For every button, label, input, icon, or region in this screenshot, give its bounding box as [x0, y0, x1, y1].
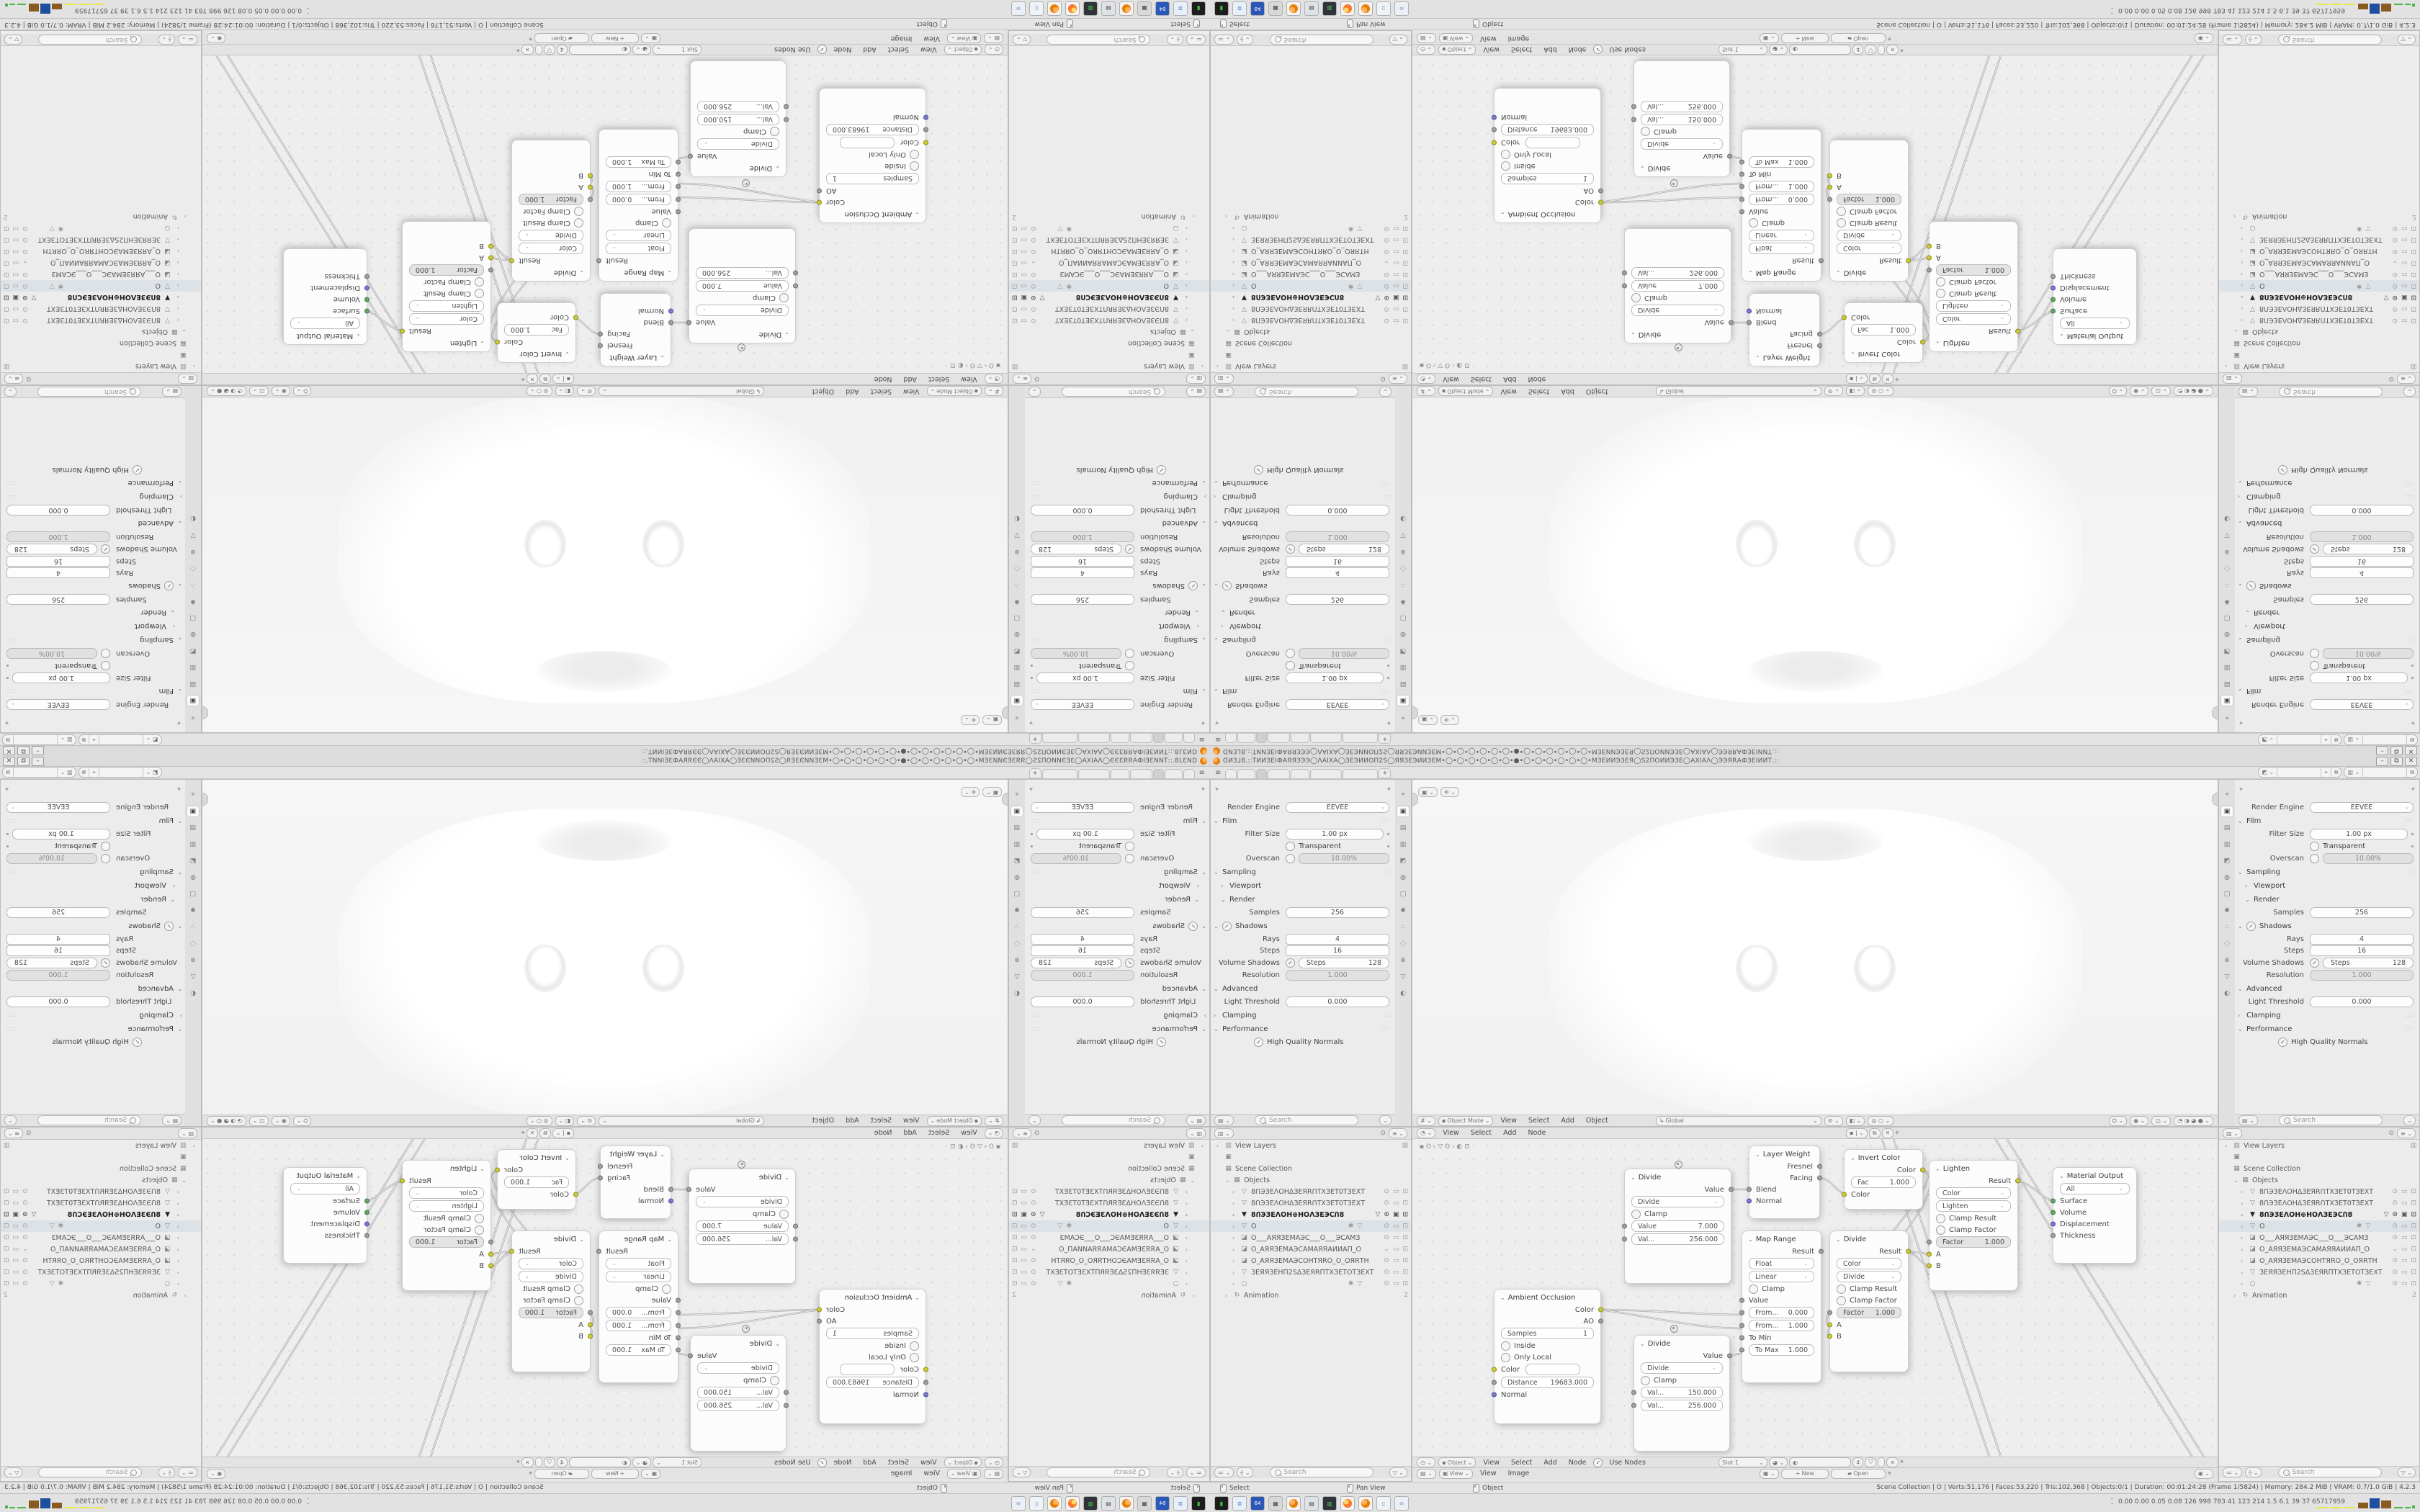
outliner-row-object[interactable]: ›▽ 8ՈЭЗЕΛОНΔЗЕЯRՈТХЗЕТ0ТЗЕХТ ⊙▭⊡	[1, 315, 201, 326]
tab-scene-icon[interactable]: ◩	[187, 646, 199, 656]
scene-browse-icon[interactable]: ◩ ⌄	[143, 768, 161, 777]
blend-mode-select[interactable]: Divide⌄	[519, 230, 583, 241]
rays-field[interactable]: 4	[2310, 934, 2414, 945]
properties-editor-icon[interactable]: ⌖	[1201, 719, 1205, 726]
outliner-row-view-layers[interactable]: ›▥ View Layers ▥	[1, 361, 201, 372]
menu-node[interactable]: Node	[1524, 375, 1551, 383]
transparent-checkbox[interactable]	[1125, 662, 1134, 671]
socket-to-max-in[interactable]: To Max1.000	[599, 1344, 678, 1356]
overlays-dropdown[interactable]: ◉ ⌄	[272, 1116, 290, 1126]
node-canvas[interactable]: ▪ O › ▽ O › ◐ ⊡ ⌄Divide Value Divide⌄ Cl…	[202, 1139, 1008, 1457]
samples-field[interactable]: 256	[1031, 595, 1134, 606]
node-invert-color[interactable]: ⌄Invert Color Color Fac1.000 Color	[498, 1150, 575, 1209]
properties-editor-icon[interactable]: ⌖	[177, 719, 181, 726]
outliner-row-object[interactable]: ›▽ 8ՈЭЗЕΛОНΔЗЕЯRՈТХЗЕТ0ТЗЕХТ ⊙▭⊡	[2219, 1186, 2419, 1197]
section-advanced[interactable]: ⌄Advanced	[6, 518, 182, 528]
calculator-app-icon[interactable]: ▦	[1137, 1, 1152, 16]
section-viewport[interactable]: ›Viewport	[1031, 881, 1199, 891]
anim-dot[interactable]	[2411, 833, 2414, 835]
image-options-button[interactable]: ◉ ⌄	[207, 1469, 225, 1479]
outliner-display-mode[interactable]: ▥ ⌄	[178, 374, 197, 384]
section-sampling[interactable]: ⌄Sampling∷∷	[2238, 867, 2414, 878]
outliner-row-camera[interactable]: ›◪ O___АЯЯЗЕМАЭС___О___ЭСАМЗ ⊙▭⊡	[1009, 1232, 1209, 1243]
menu-node[interactable]: Node	[870, 375, 897, 383]
view-layer-browse-icon[interactable]: ▥ ⌄	[2344, 768, 2363, 777]
outliner-row-camera[interactable]: ›◪ O_АЯЯЗЕМАЭСАМАЯЯАИИАП_О ⌄▭⊡	[1211, 1243, 1411, 1255]
tab-view-layer-icon[interactable]: ▥	[2221, 840, 2233, 850]
render-engine-select[interactable]: EEVEE⌄	[1031, 802, 1134, 813]
tab-scene-icon[interactable]: ◩	[1011, 856, 1023, 866]
tab-scene-icon[interactable]: ◩	[1397, 856, 1409, 866]
outliner-search-input[interactable]: Search	[1047, 35, 1150, 45]
tab-data-icon[interactable]: ▽	[187, 530, 199, 540]
resolution-field[interactable]: 1.000	[1286, 970, 1389, 981]
steps-field[interactable]: 16	[1031, 945, 1134, 956]
socket-value-out[interactable]: Value	[689, 1184, 795, 1195]
filter-size-field[interactable]: 1.00 px	[1286, 673, 1384, 684]
socket-result-out[interactable]: Result	[1930, 325, 2017, 337]
copy-icon[interactable]: ⧉	[3, 768, 13, 777]
tab-scene-icon[interactable]: ◩	[1397, 646, 1409, 656]
socket-value-in[interactable]: Value	[1742, 206, 1821, 217]
socket-value-in[interactable]: Value	[1742, 1295, 1821, 1306]
workspace-tab[interactable]	[1310, 769, 1342, 778]
reroute-node[interactable]	[742, 1325, 750, 1333]
transparent-checkbox[interactable]	[1286, 662, 1295, 671]
editor-type-button[interactable]: ▤ ⌄	[2238, 387, 2258, 397]
outliner-row-camera[interactable]: ›◪ O_АЯЯЗЕМАЭСОНТЯRО_O_ОЯRТН ⊙▭⊡	[2219, 246, 2419, 257]
node-divide-mix[interactable]: ⌄Divide Result Color⌄ Divide⌄ Clamp Resu…	[1830, 140, 1908, 281]
tab-view-layer-icon[interactable]: ▥	[187, 840, 199, 850]
pin-icon[interactable]: ⌖	[89, 735, 99, 744]
clamp-factor-checkbox[interactable]	[574, 207, 583, 217]
close-button[interactable]: ✕	[2405, 757, 2417, 766]
tab-render-icon[interactable]: ▣	[1397, 806, 1409, 816]
socket-factor-in[interactable]: Factor1.000	[403, 1236, 490, 1248]
overscan-checkbox[interactable]	[101, 649, 110, 659]
only-local-checkbox[interactable]	[1501, 150, 1510, 160]
use-nodes-checkbox[interactable]: ✓	[817, 45, 827, 55]
filter-icon[interactable]: ⊙	[2389, 1130, 2395, 1137]
outliner-row-scene-collection[interactable]: ▦ Scene Collection	[1, 1163, 201, 1174]
outliner-row-scene-collection[interactable]: ▦ Scene Collection	[1009, 1163, 1209, 1174]
workspace-tab[interactable]	[1291, 734, 1309, 743]
socket-result-out[interactable]: Result	[1742, 255, 1821, 266]
mode-select[interactable]: ▪ Object Mode ⌄	[1438, 1116, 1494, 1126]
section-sampling[interactable]: ⌄Sampling∷∷	[1214, 867, 1389, 878]
tab-constraints-icon[interactable]: ⊕	[1011, 955, 1023, 966]
clamp-result-checkbox[interactable]	[1837, 1284, 1846, 1294]
socket-value-in[interactable]: Val...150.000	[1634, 1386, 1729, 1399]
tab-render-icon[interactable]: ▣	[1011, 696, 1023, 706]
use-nodes-checkbox[interactable]: ✓	[1593, 1458, 1603, 1467]
blender2-app-icon[interactable]	[1047, 1, 1062, 16]
image-view-mode-select[interactable]: ▣ View ⌄	[947, 1469, 981, 1479]
use-nodes-checkbox[interactable]: ✓	[1593, 45, 1603, 55]
tab-output-icon[interactable]: ▤	[187, 823, 199, 833]
monitor-app-icon[interactable]: ▥	[1083, 1, 1098, 16]
tab-view-layer-icon[interactable]: ▥	[1397, 662, 1409, 672]
hq-normals-checkbox[interactable]: ✓	[2278, 466, 2287, 475]
material-browse-icon[interactable]: ◕ ⌄	[1769, 1457, 1788, 1467]
menu-view[interactable]: View	[1476, 35, 1501, 42]
menu-view[interactable]: View	[916, 46, 941, 54]
tab-output-icon[interactable]: ▤	[1011, 679, 1023, 689]
volume-shadows-checkbox[interactable]: ✓	[2310, 958, 2319, 968]
outliner-row-objects[interactable]: ⌄▦ Objects	[1, 326, 201, 338]
save-app-icon[interactable]: 64	[1155, 1, 1170, 16]
menu-select[interactable]: Select	[1507, 46, 1536, 54]
anim-dot[interactable]	[1387, 845, 1389, 847]
socket-from-min-in[interactable]: From...0.000	[1742, 193, 1821, 206]
rays-field[interactable]: 4	[1286, 568, 1389, 579]
blender2-app-icon[interactable]	[1047, 1496, 1062, 1511]
menu-add[interactable]: Add	[1539, 46, 1561, 54]
socket-to-max-in[interactable]: To Max1.000	[1742, 1344, 1821, 1356]
outliner-display-mode[interactable]: ▥ ⌄	[1214, 374, 1234, 384]
outliner-row-camera[interactable]: ›◪ O_АЯЯЗЕМАЭСАМАЯЯАИИАП_О ⌄▭⊡	[2219, 257, 2419, 269]
menu-add[interactable]: Add	[1539, 1459, 1561, 1467]
anim-dot[interactable]	[1031, 845, 1033, 847]
data-type-select[interactable]: Float⌄	[1749, 243, 1814, 254]
node-canvas[interactable]: ▪ O › ▽ O › ◐ ⊡ ⌄Divide Value Divide⌄ Cl…	[202, 55, 1008, 373]
socket-to-min-in[interactable]: To Min	[1742, 168, 1821, 180]
operation-select[interactable]: Divide⌄	[696, 1196, 789, 1207]
section-performance[interactable]: ⌄Performance∷∷	[1031, 477, 1206, 488]
section-shadows[interactable]: ⌄ ✓Shadows	[1214, 921, 1389, 932]
section-shadows[interactable]: ⌄ ✓Shadows	[1031, 921, 1206, 932]
clamp-factor-checkbox[interactable]	[1837, 207, 1846, 217]
outliner-row-filter[interactable]: ▣	[1009, 349, 1209, 361]
pin-icon[interactable]: ⌖	[1895, 1130, 1899, 1137]
outliner-display-mode[interactable]: ▥ ⌄	[178, 1128, 197, 1138]
socket-value-in[interactable]: Val...150.000	[691, 1386, 786, 1399]
node-lighten[interactable]: ⌄Lighten Result Color⌄ Lighten⌄ Clamp Re…	[403, 222, 490, 351]
samples-field[interactable]: 256	[1286, 907, 1389, 918]
clamp-checkbox[interactable]	[1749, 219, 1758, 228]
editor-type-button[interactable]: ◔ ⌄	[1417, 1128, 1435, 1138]
socket-b-in[interactable]: B	[1830, 1331, 1908, 1342]
socket-blend-in[interactable]: Blend	[601, 1184, 671, 1195]
hq-normals-checkbox[interactable]: ✓	[2278, 1038, 2287, 1047]
editor-type-button[interactable]: # ⌄	[985, 387, 1003, 397]
image-options-button[interactable]: ◉ ⌄	[207, 34, 225, 44]
add-workspace-button[interactable]: +	[1029, 734, 1041, 744]
toolbar-toggle-handle[interactable]	[1412, 706, 1418, 719]
socket-surface-in[interactable]: Surface	[2053, 1195, 2136, 1207]
socket-color-out[interactable]: Color	[820, 1304, 926, 1315]
volume-steps-field[interactable]: Steps128	[6, 544, 97, 555]
overscan-checkbox[interactable]	[101, 854, 110, 863]
rays-field[interactable]: 4	[1031, 568, 1134, 579]
steps-field[interactable]: 16	[1031, 557, 1134, 567]
volume-shadows-checkbox[interactable]: ✓	[1125, 958, 1134, 968]
outliner-filter-button[interactable]: ⟠ ⌄	[158, 1467, 175, 1477]
menu-view[interactable]: View	[919, 1470, 944, 1477]
clamp-factor-checkbox[interactable]	[475, 1225, 484, 1235]
socket-volume-in[interactable]: Volume	[284, 294, 367, 305]
editor-type-button[interactable]: ◔ ⌄	[1417, 374, 1435, 384]
socket-ao-out[interactable]: AO	[1494, 185, 1600, 197]
section-render[interactable]: ⌄Render	[1031, 894, 1199, 905]
workspace-tab[interactable]	[1225, 734, 1237, 743]
socket-normal-in[interactable]: Normal	[1494, 112, 1600, 123]
outliner-mode-button[interactable]: ≔ ⌄	[1214, 1467, 1234, 1477]
socket-ao-out[interactable]: AO	[1494, 1315, 1600, 1327]
render-disable-icon[interactable]: ⊡	[1402, 1188, 1408, 1195]
new-image-button[interactable]: + New	[591, 34, 639, 44]
light-threshold-field[interactable]: 0.000	[1286, 996, 1389, 1007]
workspace-tab[interactable]	[1111, 769, 1129, 778]
new-material-button[interactable]	[1878, 45, 1885, 55]
operation-select[interactable]: Divide⌄	[1641, 1362, 1723, 1374]
outliner-row-scene-collection[interactable]: ▦ Scene Collection	[1211, 338, 1411, 349]
overscan-field[interactable]: 10.00%	[2323, 853, 2414, 864]
clamp-result-checkbox[interactable]	[1936, 289, 1945, 299]
workspace-tab[interactable]	[1237, 734, 1255, 743]
hq-normals-checkbox[interactable]: ✓	[1157, 1038, 1166, 1047]
node-divide-1[interactable]: ⌄Divide Value Divide⌄ Clamp Value7.000 V…	[689, 229, 795, 343]
menu-add[interactable]: Add	[1556, 387, 1578, 395]
close-button[interactable]: ✕	[3, 747, 15, 756]
node-map-range[interactable]: ⌄Map Range Result Float⌄ Linear⌄ Clamp V…	[1742, 1231, 1821, 1382]
fake-user-shield-icon[interactable]: ⛉	[1865, 45, 1876, 55]
outliner-search-input[interactable]: Search	[38, 1467, 142, 1477]
socket-value-in[interactable]: Val...256.000	[689, 266, 795, 279]
snap-toggle[interactable]: ◧ ⌄	[555, 387, 575, 397]
editor-type-button[interactable]: ◷ ⌄	[1417, 45, 1435, 55]
options-button[interactable]: ⌄	[1379, 387, 1391, 397]
pin-icon[interactable]: ⌖	[5, 786, 9, 793]
properties-editor-icon[interactable]: ⌖	[1201, 786, 1205, 793]
workspace-tab[interactable]	[1078, 769, 1110, 778]
menu-object[interactable]: Object	[1582, 387, 1613, 395]
socket-facing-out[interactable]: Facing	[1749, 328, 1819, 340]
outliner-options[interactable]: ≡ ⌄	[2397, 374, 2416, 384]
socket-b-in[interactable]: B	[1930, 1260, 2017, 1272]
section-shadows[interactable]: ⌄ ✓Shadows	[2238, 580, 2414, 591]
volume-steps-field[interactable]: Steps128	[6, 958, 97, 968]
hide-icon[interactable]: ⊙	[1031, 317, 1036, 324]
shading-mode-cluster[interactable]: ◔ ◑ ◕ ● ⌄	[207, 387, 246, 397]
outliner-row-object[interactable]: ›▽ ЗЕЯЯЗЕНП2ЅΔЗЕЯRПТХЗЕТОТЗЕХТ ⊙▭⊡	[1211, 1266, 1411, 1278]
socket-value-out[interactable]: Value	[689, 317, 795, 328]
pin-icon[interactable]: ⌖	[521, 376, 525, 383]
clamp-checkbox[interactable]	[1749, 1284, 1758, 1294]
files-app-icon[interactable]: ▯	[1376, 1496, 1391, 1511]
socket-displacement-in[interactable]: Displacement	[284, 1218, 367, 1230]
overscan-field[interactable]: 10.00%	[1031, 853, 1121, 864]
section-advanced[interactable]: ⌄Advanced	[1214, 518, 1389, 528]
tab-modifiers-icon[interactable]: ✱	[2221, 596, 2233, 606]
anim-dot[interactable]	[2411, 845, 2414, 847]
pin-icon[interactable]: ⌖	[1900, 46, 1904, 53]
outliner-row-object[interactable]: ›▽ 8ՈЭЗЕΛОНΔЗЕЯRՈТХЗЕТ0ТЗЕХТ ⊙▭⊡	[1009, 315, 1209, 326]
filter-icon[interactable]: ⊙	[26, 375, 32, 382]
outliner-row-objects[interactable]: ⌄▦ Objects	[1211, 326, 1411, 338]
outliner-display-mode[interactable]: ▥ ⌄	[1186, 1128, 1206, 1138]
outliner-row-object[interactable]: ›▽ 8ՈЭЗЕΛОНΔЗЕЯRՈТХЗЕТ0ТЗЕХТ ⊙▭⊡	[1009, 303, 1209, 315]
tab-constraints-icon[interactable]: ⊕	[1397, 546, 1409, 557]
tab-scene-icon[interactable]: ◩	[1011, 646, 1023, 656]
hide-icon[interactable]: ⊙	[2392, 1188, 2398, 1195]
socket-factor-in[interactable]: Factor1.000	[1830, 1306, 1908, 1319]
add-workspace-button[interactable]: +	[1379, 734, 1391, 744]
data-type-select[interactable]: Color⌄	[409, 1187, 484, 1199]
pin-icon[interactable]: ⌖	[1888, 1470, 1891, 1477]
outliner-row-filter[interactable]: ▣	[2219, 349, 2419, 361]
socket-a-in[interactable]: A	[1830, 181, 1908, 193]
section-render[interactable]: ⌄Render	[6, 607, 175, 618]
menu-view[interactable]: View	[1476, 1470, 1501, 1477]
search-input[interactable]: Search	[37, 387, 141, 397]
menu-view[interactable]: View	[956, 1129, 982, 1137]
notes-app-icon[interactable]: ≣	[1173, 1, 1188, 16]
outliner-options[interactable]: ≡ ⌄	[1389, 374, 1407, 384]
section-film[interactable]: ⌄Film∷∷	[1031, 816, 1206, 827]
scene-selector[interactable]: ◩ ⌄ ⌖ ⧉	[2258, 734, 2341, 745]
menu-select[interactable]: Select	[924, 375, 954, 383]
image-browse-icon[interactable]: ▣ ⌄	[641, 1469, 660, 1479]
section-performance[interactable]: ⌄Performance∷∷	[2238, 1024, 2414, 1035]
section-clamping[interactable]: ›Clamping∷∷	[6, 491, 182, 502]
viewport-3d[interactable]: ▣ ⌄ ✛ ⌄ # ⌄ ▪ Object Mode ⌄ View Select …	[1412, 779, 2218, 1127]
light-threshold-field[interactable]: 0.000	[1031, 996, 1134, 1007]
steps-field[interactable]: 16	[2310, 557, 2414, 567]
unlink-button[interactable]: ✕	[1882, 374, 1894, 384]
outliner-options[interactable]: ≡ ⌄	[4, 1128, 23, 1138]
gizmo-dropdown[interactable]: ⛭ ⌄	[2109, 1116, 2128, 1126]
firefox-app-icon[interactable]	[1065, 1496, 1080, 1511]
socket-color-in[interactable]: Color	[1845, 312, 1922, 323]
socket-facing-out[interactable]: Facing	[601, 1172, 671, 1184]
target-select[interactable]: All⌄	[290, 1183, 360, 1194]
outliner-row-camera[interactable]: ›◪ O_АЯЯЗЕМАЭСОНТЯRО_O_ОЯRТН ⊙▭⊡	[1009, 1255, 1209, 1266]
viewport-widget[interactable]: ▣ ⌄	[1418, 715, 1438, 725]
unlink-button[interactable]: ✕	[1886, 1457, 1899, 1467]
socket-color-out[interactable]: Color	[1845, 336, 1922, 348]
scene-browse-icon[interactable]: ◩ ⌄	[143, 735, 161, 744]
operation-select[interactable]: Divide⌄	[1631, 305, 1724, 316]
menu-add[interactable]: Add	[900, 375, 921, 383]
samples-field[interactable]: 256	[6, 907, 110, 918]
socket-result-out[interactable]: Result	[1930, 1175, 2017, 1187]
node-divide-mix[interactable]: ⌄Divide Result Color⌄ Divide⌄ Clamp Resu…	[512, 140, 590, 281]
section-film[interactable]: ⌄Film∷∷	[2238, 685, 2414, 696]
volume-shadows-checkbox[interactable]: ✓	[101, 545, 110, 554]
socket-factor-in[interactable]: Factor1.000	[512, 193, 590, 206]
menu-object[interactable]: Object	[807, 387, 838, 395]
material-name-field[interactable]: ◐	[1789, 1457, 1851, 1467]
socket-surface-in[interactable]: Surface	[284, 305, 367, 317]
socket-blend-in[interactable]: Blend	[601, 317, 671, 328]
node-material-output[interactable]: ⌄Material Output All⌄ Surface Volume Dis…	[2053, 1168, 2136, 1263]
menu-node[interactable]: Node	[830, 1459, 856, 1467]
color-field[interactable]	[1525, 1364, 1580, 1375]
pin-icon[interactable]: ⌖	[5, 719, 9, 726]
outliner-row-filter[interactable]: ▣	[1009, 1151, 1209, 1163]
add-workspace-button[interactable]: +	[1029, 768, 1041, 778]
socket-color-out[interactable]: Color	[498, 1164, 575, 1176]
data-type-select[interactable]: Color⌄	[1936, 1187, 2011, 1199]
editor-type-button[interactable]: ◷ ⌄	[985, 1457, 1003, 1467]
proportional-editing-button[interactable]: ◎ ○ ⌄	[1868, 387, 1894, 397]
socket-result-out[interactable]: Result	[1830, 1246, 1908, 1257]
minimize-button[interactable]: –	[32, 757, 44, 766]
section-render[interactable]: ⌄Render	[6, 894, 175, 905]
id-browse-button[interactable]: ▪ | ⌄	[1846, 1128, 1868, 1138]
menu-add[interactable]: Add	[859, 46, 880, 54]
unlink-button[interactable]: ✕	[526, 1128, 539, 1138]
clamp-checkbox[interactable]	[662, 219, 671, 228]
transform-orientation-select[interactable]: ↳ Global⌄	[1656, 387, 1821, 397]
socket-color-in[interactable]: Color	[820, 136, 926, 149]
menu-node[interactable]: Node	[870, 1129, 897, 1137]
section-clamping[interactable]: ›Clamping∷∷	[2238, 1010, 2414, 1021]
render-engine-select[interactable]: EEVEE⌄	[2310, 700, 2414, 711]
socket-value-in[interactable]: Val...256.000	[691, 100, 786, 113]
gizmo-dropdown[interactable]: ⛭ ⌄	[293, 387, 312, 397]
notes-app-icon[interactable]: ≣	[1232, 1, 1247, 16]
menu-view[interactable]: View	[899, 1117, 924, 1125]
outliner-row-view-layers[interactable]: ›▥ View Layers ▥	[2219, 1140, 2419, 1151]
app-menu-icon[interactable]: ≡	[1199, 770, 1205, 777]
tab-physics-icon[interactable]: ◌	[1397, 563, 1409, 573]
hide-icon[interactable]: ⊙	[2392, 317, 2398, 324]
tab-render-icon[interactable]: ▣	[187, 696, 199, 706]
outliner-row-object[interactable]: ›▽ 8ՈЭЗЕΛОНΔЗЕЯRՈТХЗЕТ0ТЗЕХТ ⊙▭⊡	[2219, 315, 2419, 326]
socket-value-in[interactable]: Val...256.000	[1634, 100, 1729, 113]
shadows-checkbox[interactable]: ✓	[1222, 922, 1232, 931]
options-button[interactable]: ⌄	[1028, 1115, 1041, 1125]
users-count-badge[interactable]: 4	[557, 45, 568, 55]
workspace-tab[interactable]	[1291, 769, 1309, 778]
tab-scene-icon[interactable]: ◩	[2221, 856, 2233, 866]
outliner-row-animation[interactable]: ›↻ Animation 2	[2219, 1290, 2419, 1301]
calculator2-app-icon[interactable]: ▤	[1101, 1496, 1116, 1511]
tab-physics-icon[interactable]: ◌	[1397, 939, 1409, 949]
outliner-row-object-active[interactable]: ›▼ 8ՈЭЗЕΛОН⊕НОΛЗЕЭCՈ8 ▽⊙▣⊡	[1, 292, 201, 303]
tab-modifiers-icon[interactable]: ✱	[2221, 906, 2233, 916]
socket-value-in[interactable]: Val...150.000	[691, 113, 786, 126]
samples-field[interactable]: Samples1	[1501, 1328, 1594, 1339]
tab-render-icon[interactable]: ▣	[2221, 696, 2233, 706]
view-layer-browse-icon[interactable]: ▥ ⌄	[2344, 735, 2363, 744]
anim-dot[interactable]	[1387, 665, 1389, 667]
socket-a-in[interactable]: A	[403, 252, 490, 264]
overscan-field[interactable]: 10.00%	[1299, 649, 1389, 660]
image-view-mode-select[interactable]: ▣ View ⌄	[1439, 34, 1473, 44]
hide-icon[interactable]: ⊙	[22, 317, 28, 324]
socket-distance-in[interactable]: Distance19683.000	[820, 123, 926, 136]
outliner-row-object[interactable]: ›▽ 8ՈЭЗЕΛОНΔЗЕЯRՈТХЗЕТ0ТЗЕХТ ⊙▭⊡	[1211, 315, 1411, 326]
clamp-factor-checkbox[interactable]	[1936, 278, 1945, 287]
slot-select[interactable]: Slot 1⌄	[1718, 1457, 1767, 1467]
socket-distance-in[interactable]: Distance19683.000	[1494, 1376, 1600, 1389]
workspace-tab[interactable]	[1343, 769, 1378, 778]
menu-image[interactable]: Image	[1504, 1470, 1534, 1477]
outliner-row-object[interactable]: ›○ ✱▽ ⊙▭⊡	[1009, 1278, 1209, 1290]
workspace-tab-active[interactable]	[1256, 734, 1267, 743]
pin-icon[interactable]: ⌖	[1029, 719, 1033, 726]
section-viewport[interactable]: ›Viewport	[6, 881, 175, 891]
snap-target-button[interactable]: ⊘ ⌄	[1824, 387, 1843, 397]
socket-color-in[interactable]: Color	[1845, 1189, 1922, 1200]
minimize-button[interactable]: –	[2376, 747, 2388, 756]
section-performance[interactable]: ⌄Performance∷∷	[1214, 1024, 1389, 1035]
monitor-app-icon[interactable]: ▥	[1322, 1496, 1337, 1511]
toolbar-toggle-handle[interactable]	[1002, 706, 1008, 719]
